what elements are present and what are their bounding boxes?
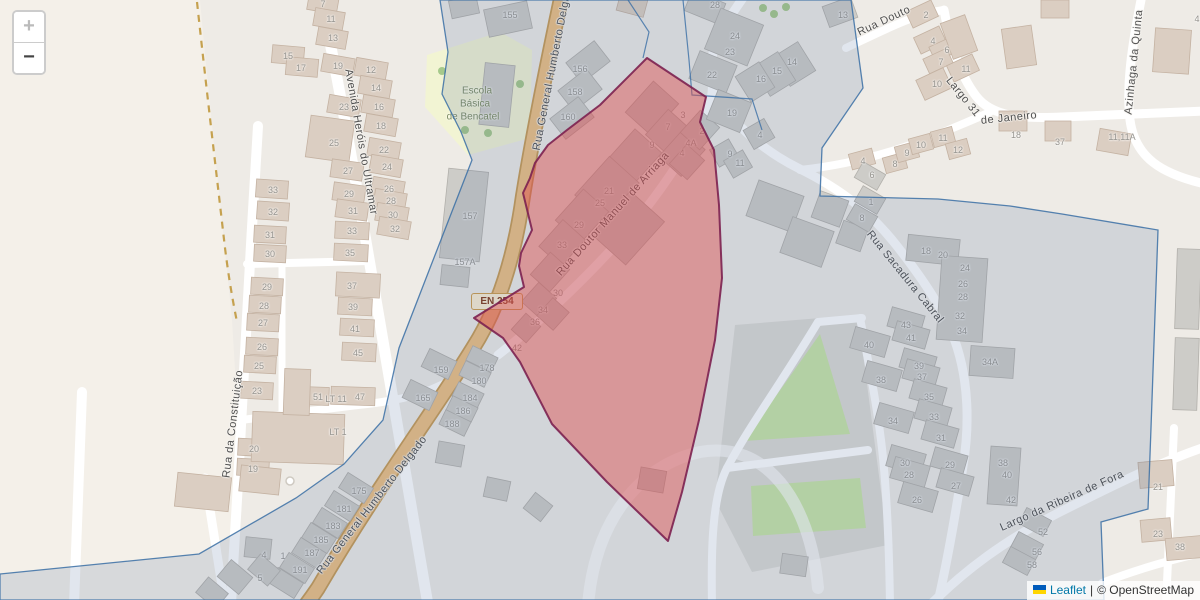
map-canvas[interactable]: EN 254 Rua General Humberto DelgadoRua G… <box>0 0 1200 600</box>
building <box>936 255 988 342</box>
building <box>334 243 369 262</box>
building <box>342 342 377 362</box>
tree-icon <box>484 129 492 137</box>
building <box>969 346 1015 379</box>
building <box>780 553 809 576</box>
building <box>1045 121 1071 141</box>
building <box>637 467 666 493</box>
osm-copyright: © OpenStreetMap <box>1097 583 1194 597</box>
tree-icon <box>438 67 446 75</box>
building <box>1175 249 1200 330</box>
building <box>1041 0 1069 18</box>
building <box>330 159 364 181</box>
building <box>335 199 369 221</box>
tree-icon <box>770 10 778 18</box>
building <box>239 465 281 495</box>
building <box>241 381 274 400</box>
attribution-separator: | <box>1090 583 1093 597</box>
building <box>246 337 279 356</box>
building <box>1173 338 1199 411</box>
farmland-area <box>0 0 238 600</box>
building <box>256 201 289 221</box>
building <box>440 265 470 288</box>
zoom-in-button[interactable]: + <box>14 12 44 43</box>
building <box>254 225 287 244</box>
building <box>244 537 272 560</box>
building <box>305 115 354 163</box>
building <box>1165 535 1200 560</box>
attribution-bar: Leaflet|© OpenStreetMap <box>1027 581 1200 600</box>
building <box>251 277 284 296</box>
building <box>244 355 277 374</box>
zoom-control: + − <box>12 10 46 75</box>
building <box>249 295 282 314</box>
building <box>254 244 287 263</box>
ukraine-flag-icon <box>1033 585 1046 594</box>
building <box>174 472 231 511</box>
building <box>1138 460 1174 489</box>
building <box>340 318 375 337</box>
building <box>335 221 370 240</box>
building <box>247 313 280 332</box>
building <box>331 386 376 406</box>
tree-icon <box>461 126 469 134</box>
tree-icon <box>516 80 524 88</box>
leaflet-link[interactable]: Leaflet <box>1050 583 1086 597</box>
building <box>1001 25 1036 69</box>
building <box>999 111 1027 131</box>
tree-icon <box>782 3 790 11</box>
tree-icon <box>759 4 767 12</box>
building <box>479 63 515 128</box>
building <box>435 441 464 467</box>
building <box>987 446 1021 506</box>
building <box>1153 28 1192 74</box>
building <box>251 411 345 464</box>
zoom-out-button[interactable]: − <box>14 43 44 73</box>
building <box>283 369 311 416</box>
building <box>335 272 380 298</box>
building <box>255 179 288 199</box>
poi-marker <box>286 477 294 485</box>
building <box>338 297 373 316</box>
building <box>285 57 318 78</box>
